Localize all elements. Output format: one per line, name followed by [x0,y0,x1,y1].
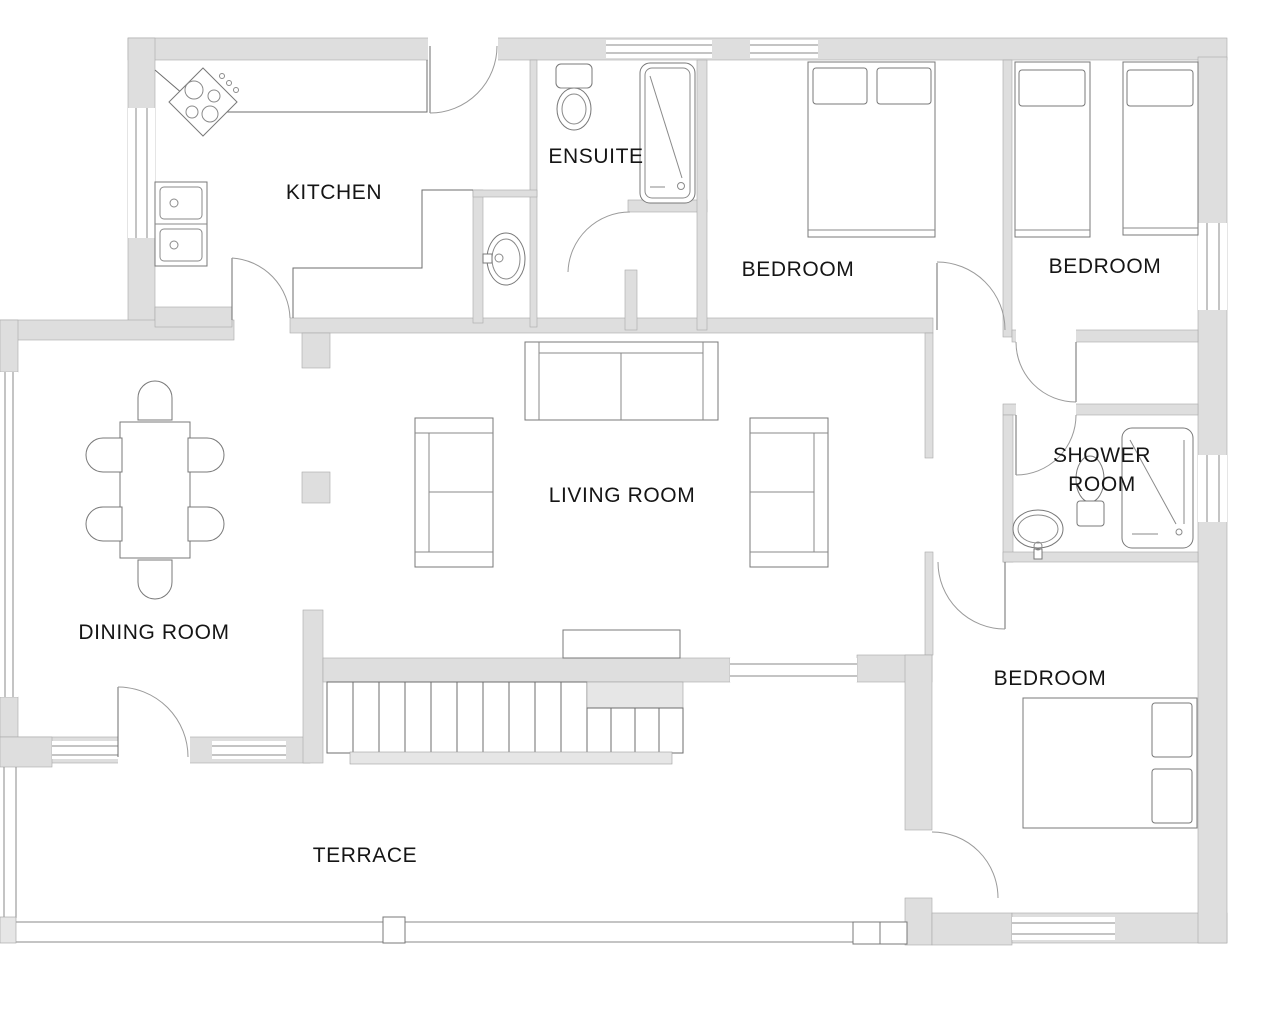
terrace-edge [0,767,907,944]
window-bedroom-1 [750,40,818,58]
window-dining-bottom-1 [52,741,118,759]
armchair-right [750,418,828,567]
room-label-dining-room: DINING ROOM [78,621,229,644]
room-label-shower-line1: SHOWER [1053,444,1151,467]
bed-double-2 [1023,698,1197,828]
room-label-living-room: LIVING ROOM [549,484,696,507]
bedroom-1-door [937,262,1005,330]
window-ensuite [606,40,712,58]
tv-unit [563,630,680,658]
ensuite-toilet [556,64,592,130]
bedroom-2-door [1016,342,1076,402]
bedroom-3-door [938,562,1005,629]
room-label-kitchen: KITCHEN [286,181,382,204]
floor-plan: KITCHEN ENSUITE BEDROOM BEDROOM SHOWER R… [0,0,1280,1024]
kitchen-door [232,258,290,320]
ensuite-bathtub [640,63,695,203]
shower-sink [1013,510,1063,559]
bed-single-1 [1015,62,1090,237]
window-living-terrace [730,658,857,682]
window-dining-left [0,372,18,697]
room-label-shower-line2: ROOM [1068,473,1136,496]
window-bedroom-3-bottom [1012,917,1115,940]
ensuite-door [568,212,630,272]
room-label-bedroom-2: BEDROOM [1049,255,1162,278]
kitchen-stove [169,68,239,136]
room-label-bedroom-1: BEDROOM [742,258,855,281]
window-kitchen-left [128,108,155,238]
bed-single-2 [1123,62,1198,235]
room-label-bedroom-3: BEDROOM [994,667,1107,690]
room-label-ensuite: ENSUITE [548,145,643,168]
window-dining-bottom-2 [212,741,286,759]
bedroom-3-terrace-door [932,832,998,898]
sofa [525,342,718,420]
bed-double [808,62,935,237]
window-bedroom-2-right [1198,223,1227,310]
room-label-terrace: TERRACE [313,844,418,867]
wc-sink [483,233,525,285]
dining-table [120,422,190,558]
window-shower-right [1198,455,1227,522]
staircase [327,682,683,764]
floor-plan-drawing: KITCHEN ENSUITE BEDROOM BEDROOM SHOWER R… [0,0,1280,1024]
kitchen-sink [155,182,207,266]
armchair-left [415,418,493,567]
